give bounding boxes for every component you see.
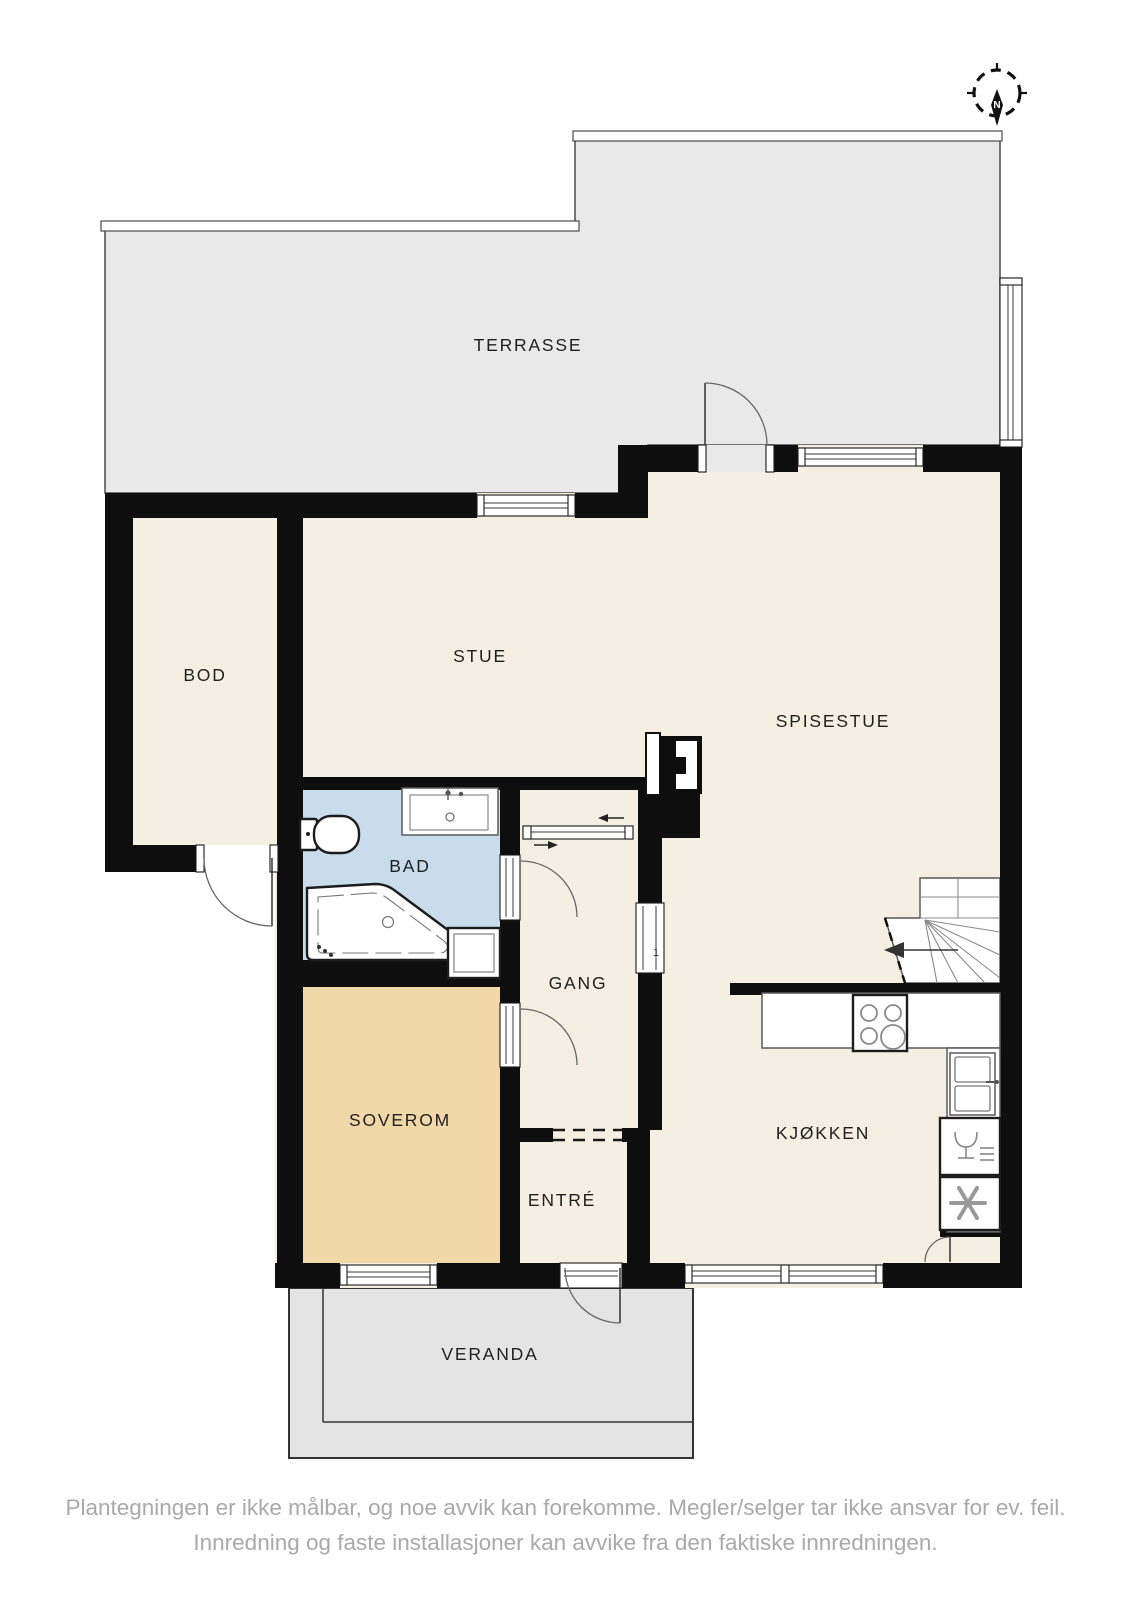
terrace-area xyxy=(101,131,1002,493)
terrace-floor xyxy=(105,135,1000,493)
terrace-railing-right xyxy=(573,131,1002,141)
window-stue xyxy=(477,495,575,516)
sink-vanity xyxy=(402,788,498,835)
terrace-door-opening xyxy=(698,445,774,472)
cooktop xyxy=(853,995,907,1051)
label-terrasse: TERRASSE xyxy=(474,335,583,355)
label-bad: BAD xyxy=(389,856,430,876)
label-stue: STUE xyxy=(453,646,507,666)
toilet xyxy=(300,816,359,853)
compass-north-label: N xyxy=(993,100,1000,111)
label-soverom: SOVEROM xyxy=(349,1110,451,1130)
veranda-floor xyxy=(289,1288,693,1458)
disclaimer-text: Plantegningen er ikke målbar, og noe avv… xyxy=(0,1490,1131,1560)
window-spisestue xyxy=(798,448,923,466)
label-gang: GANG xyxy=(549,973,608,993)
disclaimer-line-1: Plantegningen er ikke målbar, og noe avv… xyxy=(0,1490,1131,1525)
kitchen-sink xyxy=(950,1053,999,1115)
dishwasher xyxy=(940,1118,1000,1175)
soverom-door-jamb xyxy=(500,1003,520,1067)
label-kjokken: KJØKKEN xyxy=(776,1123,870,1143)
bod-door-opening xyxy=(196,845,278,872)
window-soverom xyxy=(340,1265,437,1285)
label-door-number: 1 xyxy=(653,947,659,959)
window-kjokken xyxy=(685,1265,883,1283)
compass-icon: N xyxy=(967,63,1027,126)
window-right-wall xyxy=(1000,278,1022,447)
entre-door-opening xyxy=(560,1263,622,1288)
disclaimer-line-2: Innredning og faste installasjoner kan a… xyxy=(0,1525,1131,1560)
bad-door-jamb xyxy=(500,855,520,920)
washing-machine xyxy=(448,928,500,978)
floorplan-canvas: TERRASSE BOD STUE SPISESTUE BAD GANG SOV… xyxy=(0,0,1131,1600)
freezer xyxy=(940,1177,1000,1230)
label-bod: BOD xyxy=(183,665,226,685)
fireplace xyxy=(646,733,702,795)
gang-entre-opening xyxy=(553,1128,622,1142)
label-veranda: VERANDA xyxy=(441,1344,538,1364)
label-entre: ENTRÉ xyxy=(528,1190,596,1210)
label-spisestue: SPISESTUE xyxy=(776,711,890,731)
veranda-area xyxy=(289,1288,693,1458)
gang-cased-opening xyxy=(636,903,664,973)
terrace-railing-left xyxy=(101,221,579,231)
floorplan-drawing: TERRASSE BOD STUE SPISESTUE BAD GANG SOV… xyxy=(0,0,1131,1600)
